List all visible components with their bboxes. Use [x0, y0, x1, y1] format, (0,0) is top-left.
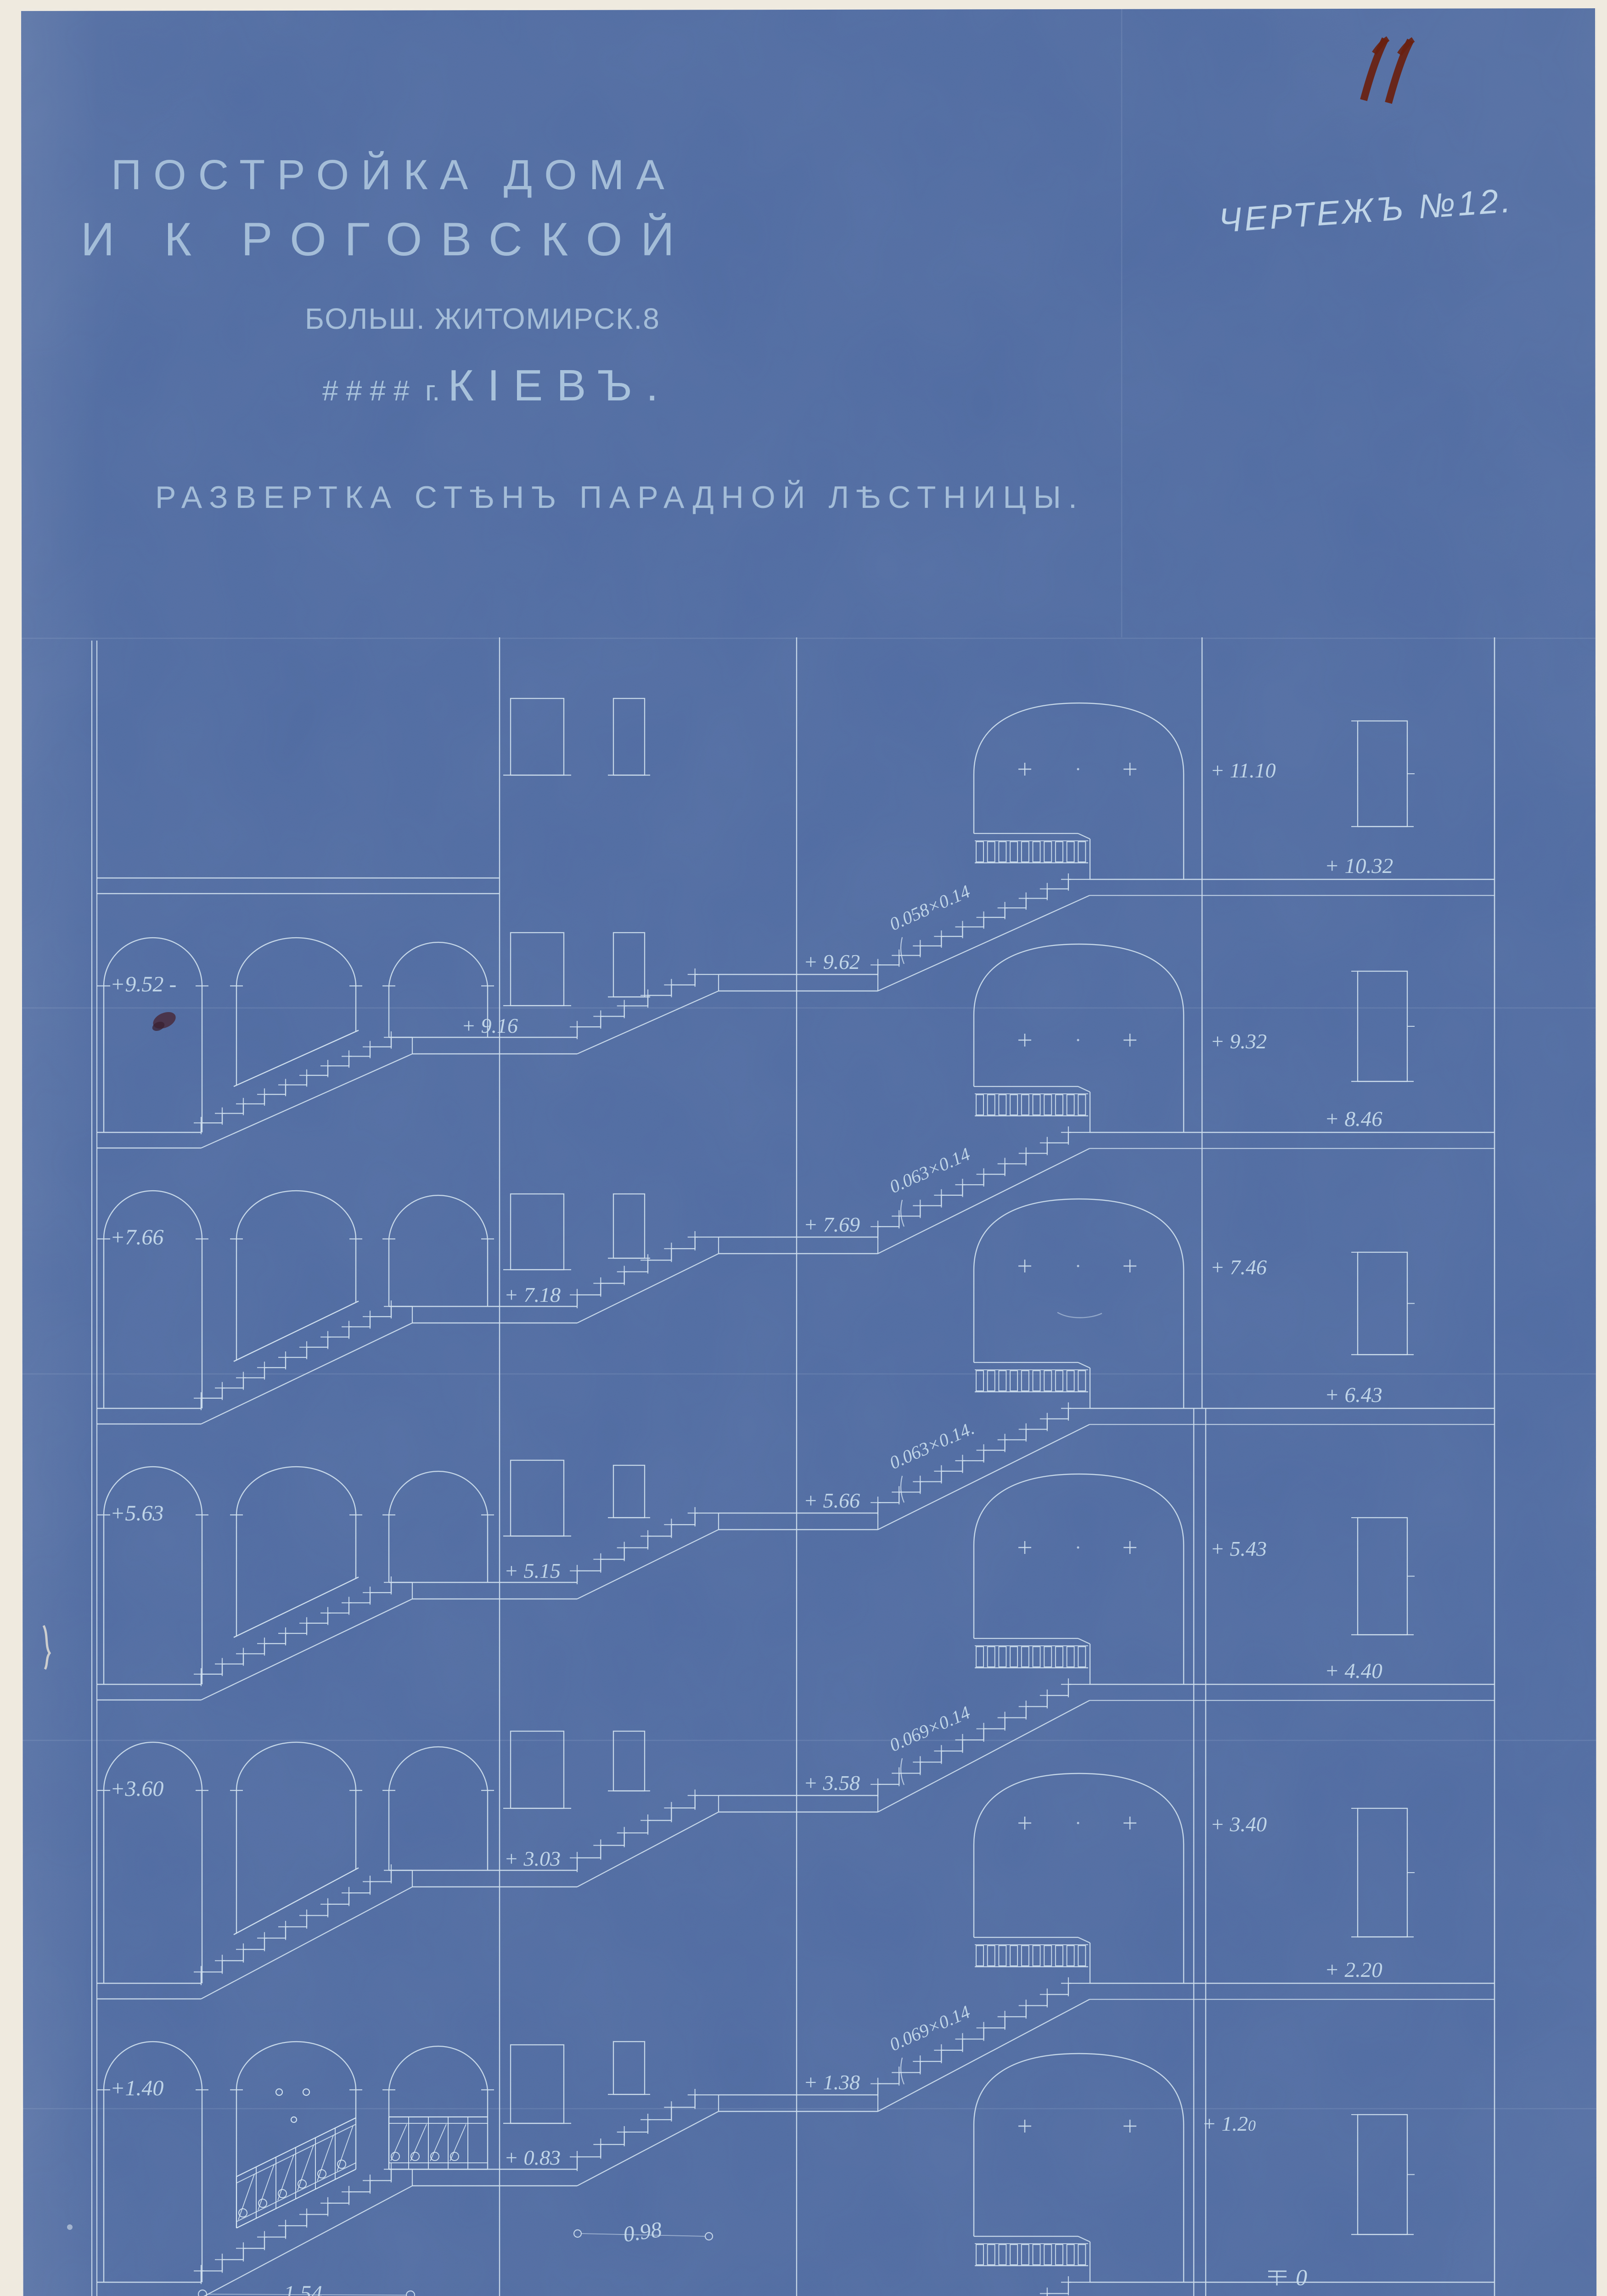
- svg-text:0: 0: [1296, 2264, 1307, 2290]
- svg-text:+ 3.58: + 3.58: [803, 1771, 860, 1795]
- svg-text:1.54: 1.54: [284, 2281, 322, 2296]
- svg-text:+1.40: +1.40: [110, 2076, 163, 2100]
- svg-text:+9.52 -: +9.52 -: [110, 972, 176, 996]
- svg-text:БОЛЬШ. ЖИТОМИРСК.8: БОЛЬШ. ЖИТОМИРСК.8: [305, 302, 660, 335]
- svg-text:+7.66: +7.66: [110, 1225, 163, 1249]
- svg-text:+ 10.32: + 10.32: [1325, 854, 1393, 878]
- svg-text:+ 7.46: + 7.46: [1210, 1255, 1267, 1279]
- svg-text:+ 9.32: + 9.32: [1210, 1030, 1267, 1053]
- svg-text:+ 7.18: + 7.18: [504, 1283, 561, 1306]
- svg-text:РАЗВЕРТКА СТѢНЪ ПАРАДНОЙ ЛѢСТН: РАЗВЕРТКА СТѢНЪ ПАРАДНОЙ ЛѢСТНИЦЫ.: [155, 479, 1084, 515]
- svg-text:ПОСТРОЙКА ДОМА: ПОСТРОЙКА ДОМА: [111, 151, 676, 198]
- svg-text:+3.60: +3.60: [110, 1777, 163, 1801]
- svg-text:+ 3.40: + 3.40: [1210, 1812, 1267, 1836]
- svg-text:+ 4.40: + 4.40: [1325, 1659, 1382, 1683]
- svg-text:+ 5.15: + 5.15: [504, 1559, 561, 1582]
- svg-text:+ 6.43: + 6.43: [1325, 1383, 1382, 1407]
- svg-text:+ 2.20: + 2.20: [1325, 1958, 1382, 1982]
- svg-text:+ 5.66: + 5.66: [803, 1489, 860, 1512]
- svg-text:+ 9.62: + 9.62: [803, 950, 860, 974]
- svg-text:+ 8.46: + 8.46: [1325, 1107, 1382, 1131]
- svg-text:+ 11.10: + 11.10: [1210, 759, 1276, 782]
- svg-text:+ 1.38: + 1.38: [803, 2071, 860, 2094]
- svg-text:+ 0.83: + 0.83: [504, 2146, 561, 2169]
- svg-text:+ 5.43: + 5.43: [1210, 1537, 1267, 1560]
- svg-text:+ 7.69: + 7.69: [803, 1213, 860, 1236]
- svg-text:И К РОГОВСКОЙ: И К РОГОВСКОЙ: [81, 213, 693, 265]
- svg-text:+5.63: +5.63: [110, 1501, 163, 1525]
- svg-text:+ 3.03: + 3.03: [504, 1847, 561, 1870]
- svg-text:+ 1.20: + 1.20: [1202, 2112, 1256, 2135]
- svg-text:+ 9.16: + 9.16: [461, 1014, 518, 1037]
